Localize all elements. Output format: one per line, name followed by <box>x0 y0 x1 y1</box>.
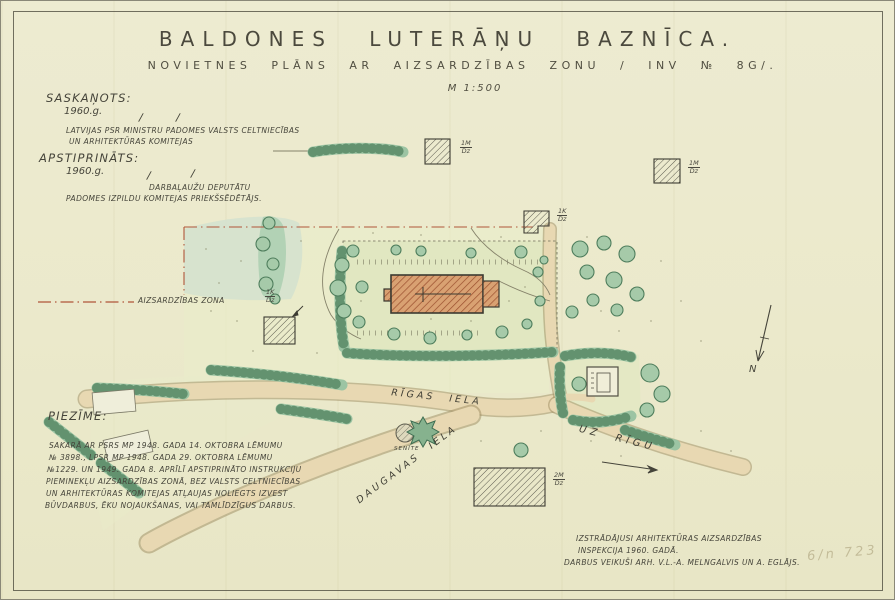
note-line: №1229. UN 1949. GADA 8. APRĪLĪ APSTIPRIN… <box>47 465 302 474</box>
building-label-1k-east: 1K Dz <box>557 208 567 223</box>
credits-line-2: INSPEKCIJA 1960. GADĀ. <box>578 546 679 555</box>
north-arrow-icon <box>756 305 771 361</box>
saskanots-body-1: LATVIJAS PSR MINISTRU PADOMES VALSTS CEL… <box>66 126 300 135</box>
senite-label: SENĪTE <box>394 446 420 452</box>
saskanots-body-2: UN ARHITEKTŪRAS KOMITEJAS <box>69 137 193 146</box>
building-use: Dz <box>688 168 700 175</box>
building-label-1m-right: 1M Dz <box>688 160 700 175</box>
credits-line-1: IZSTRĀDĀJUSI ARHITEKTŪRAS AIZSARDZĪBAS <box>576 534 762 543</box>
note-line: UN ARHITEKTŪRAS KOMITEJAS ATĻAUJAS NOLIE… <box>46 489 288 498</box>
plan-sheet: BALDONES LUTERĀŅU BAZNĪCA. NOVIETNES PLĀ… <box>0 0 895 600</box>
building-use: Dz <box>553 480 565 487</box>
note-line: № 3898., LPSR MP 1948. GADA 29. OKTOBRA … <box>49 453 273 462</box>
credits-line-3: DARBUS VEIKUŠI ARH. V.L.-A. MELNGALVIS U… <box>564 558 800 567</box>
church-building <box>384 275 499 313</box>
apstiprinats-year: 1960.g. <box>66 166 104 177</box>
building-label-1k-west: 1K Dz <box>265 289 275 304</box>
building-use: Dz <box>557 216 567 223</box>
courtyard-building <box>587 367 618 396</box>
note-line: PIEMINEKĻU AIZSARDZĪBAS ZONĀ, BEZ VALSTS… <box>46 477 301 486</box>
scale-label: M 1:500 <box>425 83 525 94</box>
saskanots-year: 1960.g. <box>64 106 102 117</box>
apstiprinats-label: APSTIPRINĀTS: <box>39 151 139 165</box>
building-label-2m-south: 2M Dz <box>553 472 565 487</box>
note-heading: PIEZĪME: <box>48 409 108 423</box>
north-label: N <box>749 364 756 375</box>
zone-legend-label: AIZSARDZĪBAS ZONA <box>138 296 225 305</box>
saskanots-label: SASKAŅOTS: <box>46 91 132 105</box>
apstiprinats-body-2: PADOMES IZPILDU KOMITEJAS PRIEKŠSĒDĒTĀJS… <box>66 194 262 203</box>
page-title: BALDONES LUTERĀŅU BAZNĪCA. <box>1 27 894 51</box>
note-line: SAKARĀ AR PSRS MP 1948. GADA 14. OKTOBRA… <box>49 441 283 450</box>
page-subtitle: NOVIETNES PLĀNS AR AIZSARDZĪBAS ZONU / I… <box>31 59 894 72</box>
building-label-1m-top: 1M Dz <box>460 140 472 155</box>
note-line: BŪVDARBUS, ĒKU NOJAUKŠANAS, VAI TAMLĪDZĪ… <box>45 501 296 510</box>
uz-rigu-arrow-icon <box>602 462 657 473</box>
apstiprinats-body-1: DARBAĻAUŽU DEPUTĀTU <box>149 183 251 192</box>
building-use: Dz <box>460 148 472 155</box>
building-use: Dz <box>265 297 275 304</box>
